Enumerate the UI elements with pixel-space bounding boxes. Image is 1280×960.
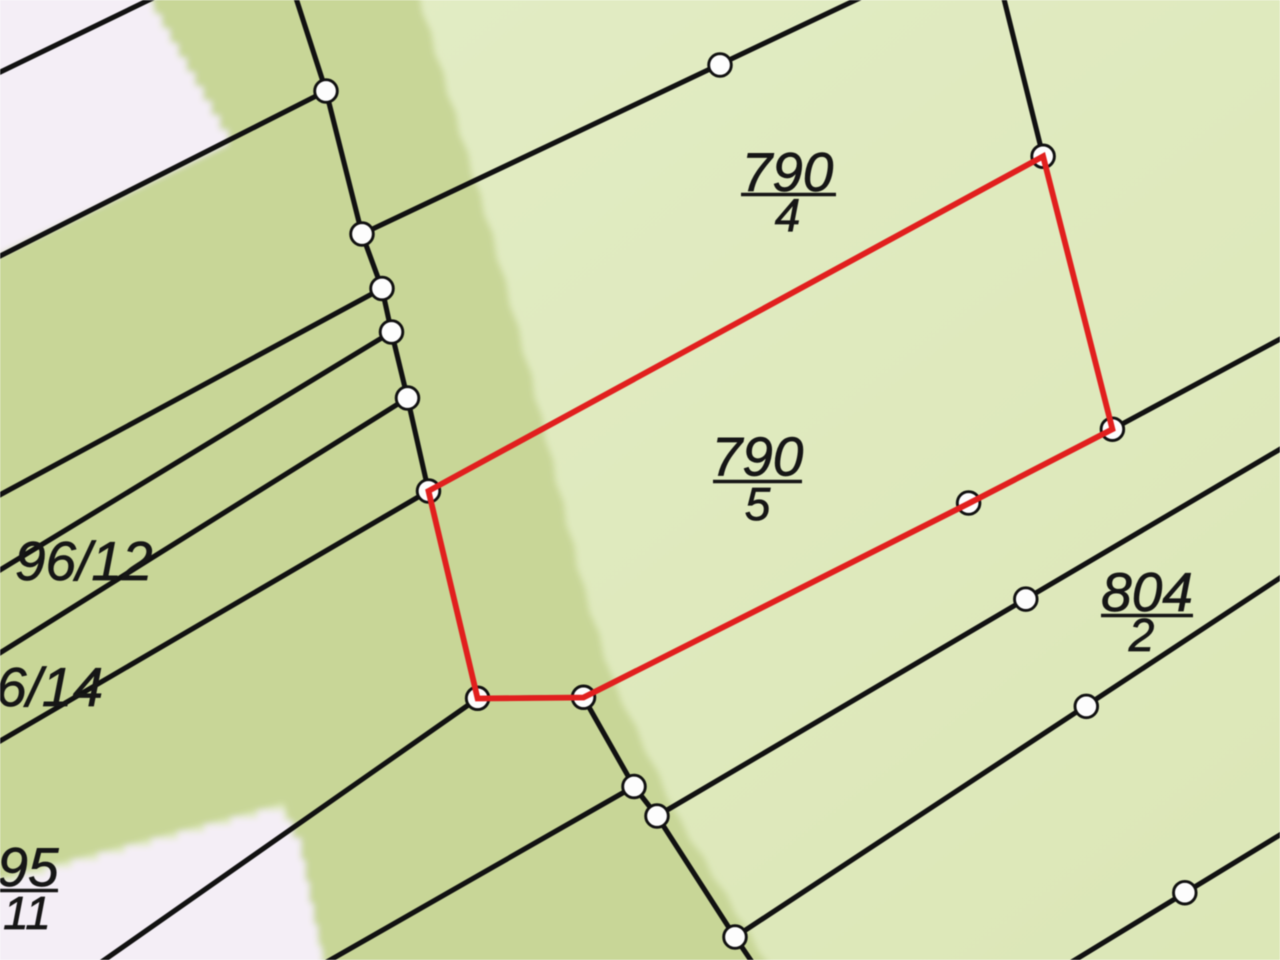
svg-text:5: 5: [745, 478, 771, 530]
svg-text:6/14: 6/14: [0, 656, 103, 718]
svg-text:11: 11: [3, 887, 51, 939]
svg-text:96/12: 96/12: [15, 530, 153, 592]
svg-text:4: 4: [775, 189, 801, 241]
